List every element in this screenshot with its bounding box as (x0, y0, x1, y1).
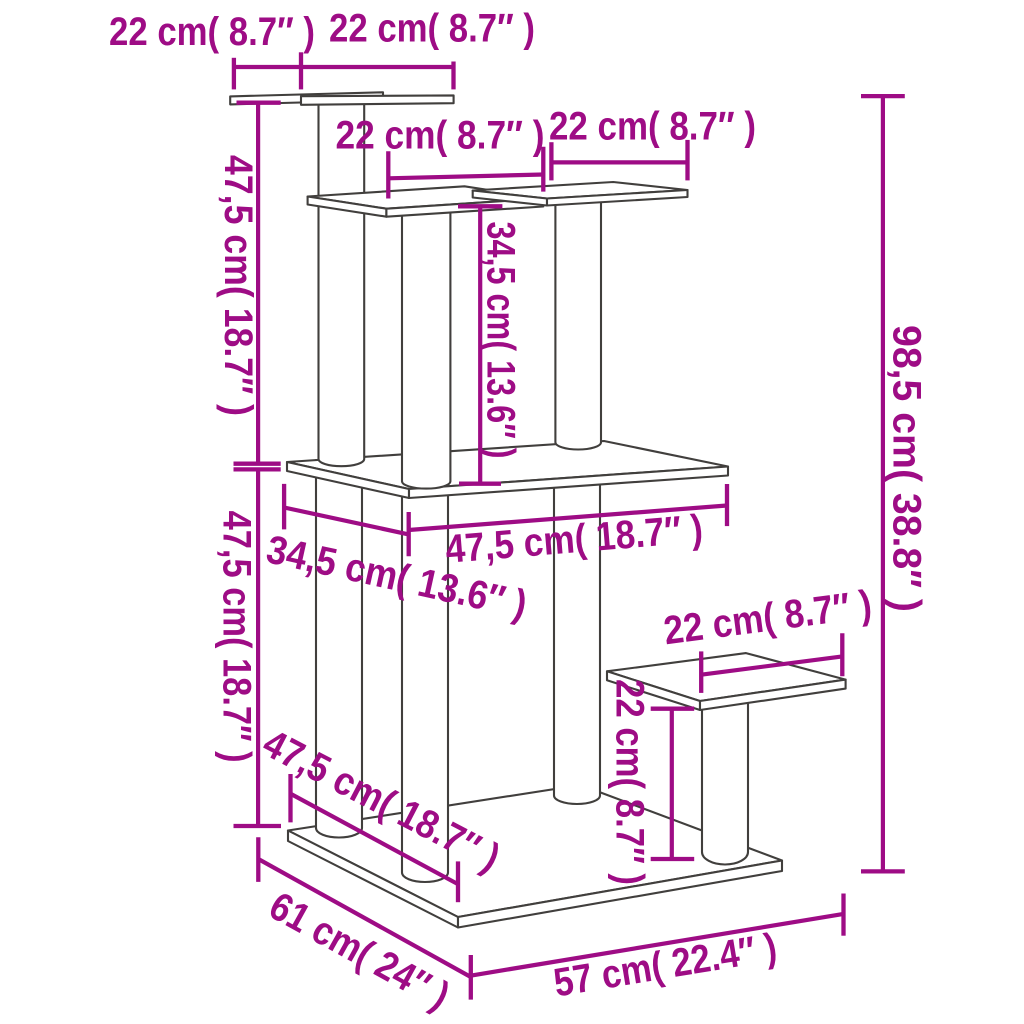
svg-text:34,5 cm( 13.6″ ): 34,5 cm( 13.6″ ) (479, 222, 523, 459)
svg-text:22 cm( 8.7″ ): 22 cm( 8.7″ ) (336, 114, 545, 158)
svg-text:22 cm( 8.7″ ): 22 cm( 8.7″ ) (608, 679, 652, 885)
svg-text:47,5 cm( 18.7″ ): 47,5 cm( 18.7″ ) (216, 155, 260, 416)
svg-text:98,5 cm( 38.8″ ): 98,5 cm( 38.8″ ) (885, 325, 929, 612)
svg-text:47,5 cm( 18.7″ ): 47,5 cm( 18.7″ ) (215, 511, 259, 763)
svg-text:22 cm( 8.7″ ): 22 cm( 8.7″ ) (329, 7, 535, 51)
svg-text:22 cm( 8.7″ ): 22 cm( 8.7″ ) (109, 10, 315, 54)
svg-text:22 cm( 8.7″ ): 22 cm( 8.7″ ) (549, 105, 756, 149)
